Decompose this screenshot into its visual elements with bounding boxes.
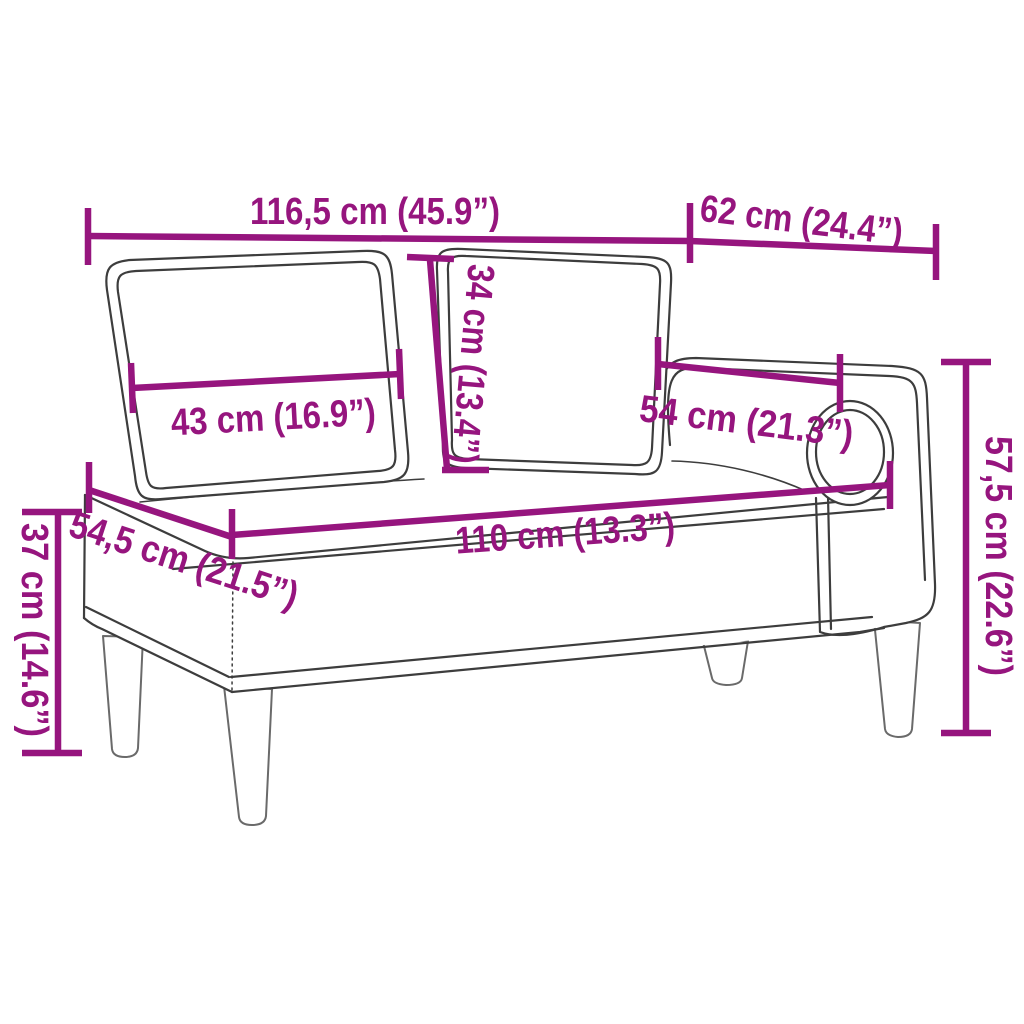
leg-front-left: [224, 686, 272, 825]
leg-height-label: 37 cm (14.6”): [13, 523, 55, 737]
total-width-label: 116,5 cm (45.9”): [250, 191, 500, 233]
chaise-dimension-diagram: 116,5 cm (45.9”) 62 cm (24.4”) 43 cm (16…: [0, 0, 1024, 1024]
diagram-canvas: 116,5 cm (45.9”) 62 cm (24.4”) 43 cm (16…: [0, 0, 1024, 1024]
leg-back-left: [103, 636, 143, 757]
leg-front-right: [874, 620, 920, 737]
dim-tick-right: [399, 349, 401, 399]
dim-tick-top: [407, 257, 454, 259]
dim-tick-left: [131, 363, 133, 413]
total-height-label: 57,5 cm (22.6”): [977, 436, 1019, 676]
dim-line: [88, 236, 690, 241]
